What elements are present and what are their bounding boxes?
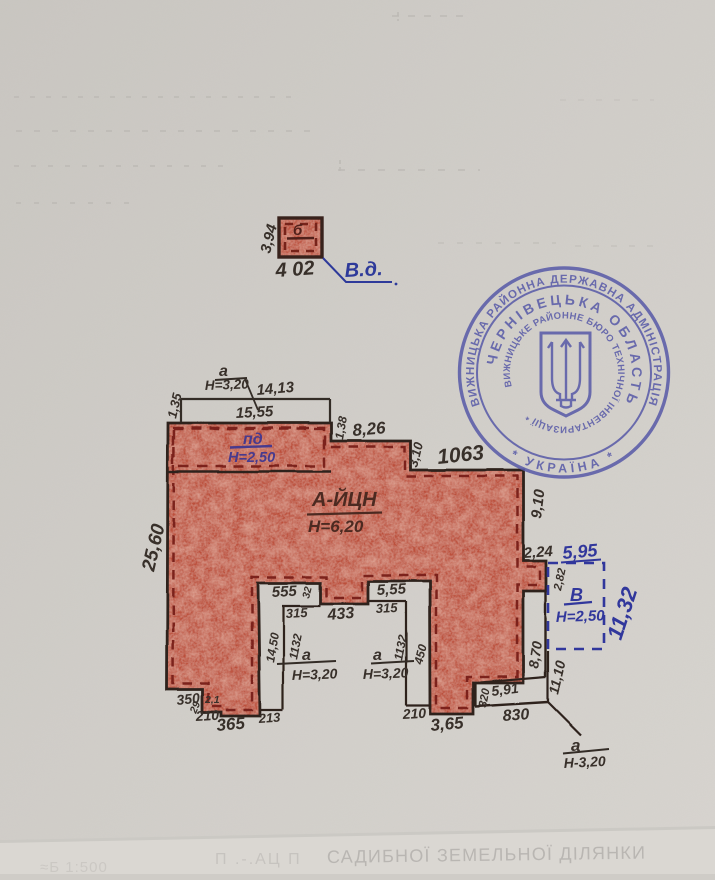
svg-text:213: 213 xyxy=(257,709,281,726)
svg-text:1063: 1063 xyxy=(436,441,485,469)
svg-text:433: 433 xyxy=(326,605,355,624)
svg-text:365: 365 xyxy=(216,714,246,735)
svg-text:Н=3,20: Н=3,20 xyxy=(205,376,250,393)
svg-text:В.д.: В.д. xyxy=(344,258,383,282)
svg-text:П .-.АЦ П: П .-.АЦ П xyxy=(215,851,302,868)
svg-text:Н=2,50: Н=2,50 xyxy=(228,450,275,466)
svg-text:2,24: 2,24 xyxy=(522,543,554,562)
svg-text:б: б xyxy=(293,222,303,239)
svg-text:210: 210 xyxy=(401,705,426,722)
svg-text:830: 830 xyxy=(502,706,530,725)
svg-text:≈Б 1:500: ≈Б 1:500 xyxy=(40,859,108,876)
svg-text:а: а xyxy=(571,736,580,755)
svg-text:Н=2,50: Н=2,50 xyxy=(556,607,606,626)
svg-text:9,10: 9,10 xyxy=(528,488,549,520)
svg-text:а: а xyxy=(302,647,311,664)
svg-text:8,26: 8,26 xyxy=(352,418,387,440)
svg-text:3,65: 3,65 xyxy=(430,713,465,735)
svg-text:4 02: 4 02 xyxy=(274,257,315,282)
svg-text:Н=3,20: Н=3,20 xyxy=(292,665,338,683)
svg-text:315: 315 xyxy=(375,600,398,616)
svg-text:Н=3,20: Н=3,20 xyxy=(363,664,409,682)
svg-text:Н-3,20: Н-3,20 xyxy=(563,753,606,771)
svg-text:Н=6,20: Н=6,20 xyxy=(308,517,364,536)
svg-text:5,55: 5,55 xyxy=(376,580,407,599)
svg-text:15,55: 15,55 xyxy=(235,403,274,422)
svg-text:315: 315 xyxy=(285,605,308,621)
svg-text:555: 555 xyxy=(271,583,298,601)
svg-text:а: а xyxy=(373,647,382,664)
svg-text:А-ЙЦН: А-ЙЦН xyxy=(311,487,377,511)
svg-text:14,13: 14,13 xyxy=(256,379,296,399)
svg-text:5,91: 5,91 xyxy=(490,680,519,699)
svg-text:2,1: 2,1 xyxy=(204,694,220,706)
